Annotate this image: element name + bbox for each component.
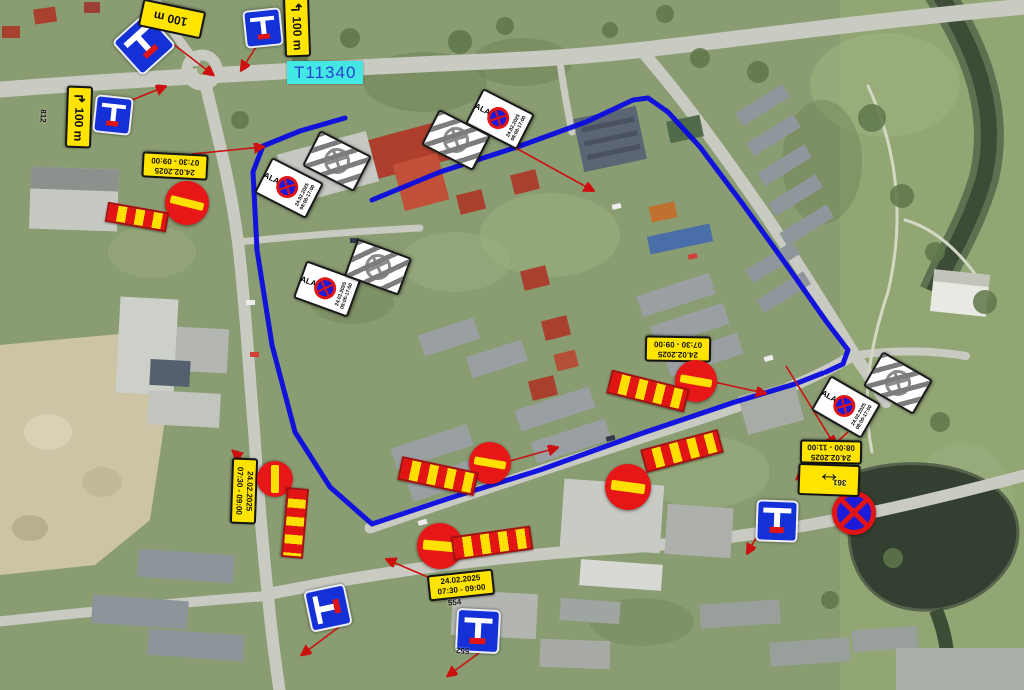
turn-left-arrow-icon: ↰ xyxy=(288,1,305,13)
two-way-extent-plate: ↔ xyxy=(797,463,860,497)
distance-plate-100m: ↱ 100 m xyxy=(65,86,93,149)
distance-plate-100m: ↰ 100 m xyxy=(283,0,311,57)
no-stopping-sign xyxy=(832,491,876,535)
turn-right-arrow-icon: ↱ xyxy=(71,92,88,104)
date-time-plate: 24.02.2025 08:00 - 11:00 xyxy=(800,439,862,464)
date-time-plate: 24.02.2025 07:30 - 09:00 xyxy=(230,458,258,525)
dead-end-sign xyxy=(755,499,798,542)
dead-end-sign xyxy=(242,7,284,49)
sign-code-554: 554 xyxy=(448,598,462,607)
dead-end-sign xyxy=(92,94,134,136)
date-time-plate: 24.02.2025 07:30 - 09:00 xyxy=(141,151,208,180)
sign-code-552: 552 xyxy=(456,646,470,655)
road-ref-label: T11340 xyxy=(287,61,363,84)
dead-end-sign xyxy=(303,583,353,633)
sign-code-361: 361 xyxy=(833,478,847,487)
sign-code-812: 812 xyxy=(38,109,46,123)
traffic-management-plan-map: 552 100 m ↰ 100 m ↱ 100 m 812 24.02.2025… xyxy=(0,0,1024,690)
date-time-plate: 24.02.2025 07:30 - 09:00 xyxy=(645,335,711,362)
